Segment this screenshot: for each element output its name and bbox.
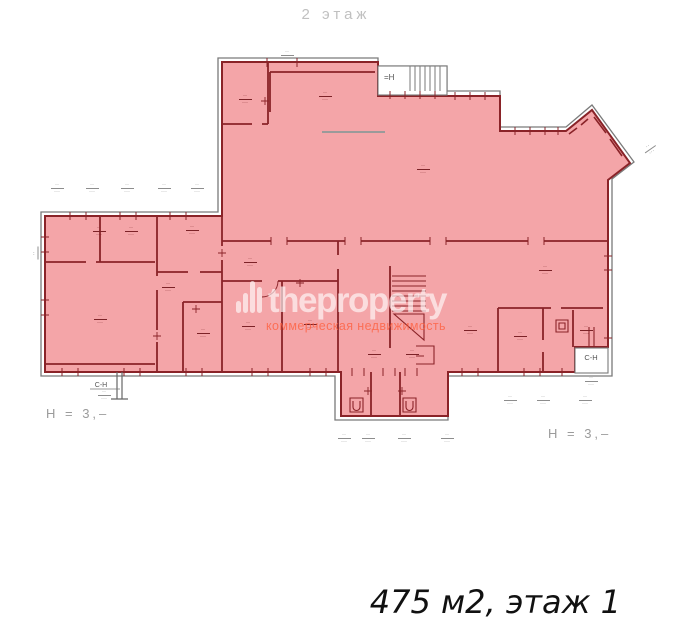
service-label-right: С-Н (584, 353, 597, 362)
room-area-label: ····· (233, 94, 257, 105)
room-area-label: ····· (238, 257, 262, 268)
room-area-label: ····· (119, 226, 143, 237)
height-note-left: Н = 3,– (46, 406, 109, 421)
service-box-right: С-Н (575, 348, 608, 373)
room-area-label: ····· (87, 226, 111, 237)
dimension-label: ····· (573, 395, 597, 406)
stair-top-label: =Н (384, 73, 395, 82)
room-area-label: ····· (313, 91, 337, 102)
dimension-label: ····· (185, 183, 209, 194)
room-area-label: ····· (191, 328, 215, 339)
dimension-label: ····· (579, 376, 603, 387)
watermark-tagline: коммерческая недвижимость (236, 319, 476, 333)
dimension-label: ····· (498, 395, 522, 406)
watermark: theproperty коммерческая недвижимость (236, 281, 476, 333)
dimension-label: ····· (332, 433, 356, 444)
room-area-label: ····· (156, 282, 180, 293)
room-area-label: ····· (362, 349, 386, 360)
room-area-label: ····· (88, 314, 112, 325)
dimension-label: ····· (33, 242, 44, 266)
room-area-label: ····· (400, 349, 424, 360)
watermark-brand: theproperty (268, 286, 446, 316)
dimension-label: ····· (152, 183, 176, 194)
floor-title: 2 этаж (302, 6, 371, 23)
service-label-left: С-Н (95, 382, 107, 389)
room-area-label: ····· (574, 325, 598, 336)
dimension-label: ····· (435, 433, 459, 444)
room-area-label: ····· (180, 225, 204, 236)
dimension-label: ····· (45, 183, 69, 194)
stair-hatch (410, 66, 440, 91)
stairwell-top: =Н (378, 66, 447, 95)
dimension-label: ····· (531, 395, 555, 406)
height-note-right: Н = 3,– (548, 426, 611, 441)
floorplan-page: 2 этаж =Н С-Н (0, 0, 693, 629)
room-area-label: ····· (508, 331, 532, 342)
dimension-label: ····· (115, 183, 139, 194)
room-area-label: ····· (411, 164, 435, 175)
dimension-label: ····· (92, 390, 116, 401)
room-area-label: ····· (533, 265, 557, 276)
dimension-label: ····· (392, 433, 416, 444)
area-caption: 475 м2, этаж 1 (370, 583, 621, 621)
dimension-label: ····· (275, 50, 299, 61)
dimension-label: ····· (356, 433, 380, 444)
dimension-label: ····· (80, 183, 104, 194)
brand-bars-icon (236, 281, 262, 313)
